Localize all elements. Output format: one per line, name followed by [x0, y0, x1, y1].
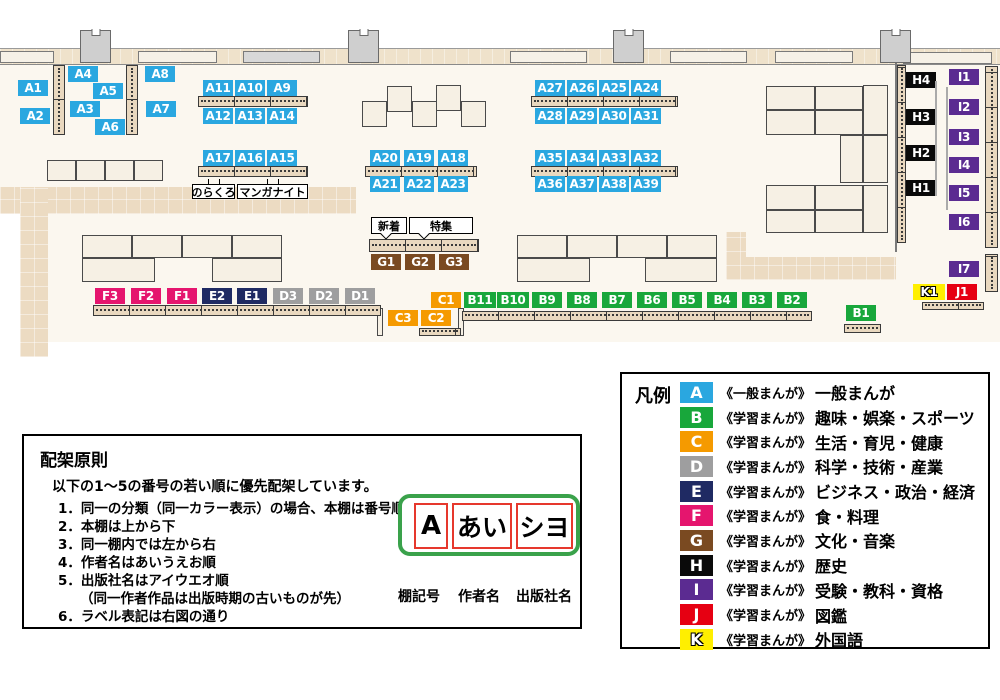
shelf-label-a20: A20 — [370, 150, 400, 166]
legend-title: 凡例 — [635, 382, 671, 408]
shelf-label-a37: A37 — [567, 176, 597, 192]
shelf-label-a34: A34 — [567, 150, 597, 166]
wall-pillar — [613, 30, 644, 63]
table-rect — [766, 185, 815, 210]
principle-item-2: 2．本棚は上から下 — [58, 518, 405, 536]
table-rect — [76, 160, 105, 181]
floor-cutout — [0, 214, 20, 342]
legend-row-i: I《学習まんが》受験・教科・資格 — [680, 578, 975, 603]
shelf-label-a13: A13 — [235, 108, 265, 124]
table-rect — [232, 235, 282, 258]
legend-row-a: A《一般まんが》一般まんが — [680, 380, 975, 405]
shelf-label-a11: A11 — [203, 80, 233, 96]
legend-badge-j: J — [680, 604, 713, 625]
walkway-right-horizontal — [726, 257, 896, 280]
shelf-label-c2: C2 — [421, 310, 451, 326]
shelf-label-h1: H1 — [906, 180, 936, 196]
shelf-strip — [922, 302, 984, 310]
shelf-label-k1: K1 — [913, 284, 945, 300]
legend-prefix: 《学習まんが》 — [720, 482, 811, 501]
legend-category-name: 外国語 — [815, 627, 863, 651]
legend-badge-h: H — [680, 555, 713, 576]
principle-item-1: 1．同一の分類（同一カラー表示）の場合、本棚は番号順 — [58, 500, 405, 518]
shelf-label-a9: A9 — [267, 80, 297, 96]
shelf-strip — [126, 65, 138, 135]
shelf-label-b2: B2 — [777, 292, 807, 308]
shelf-label-a4: A4 — [68, 66, 98, 82]
walkway-right-vertical — [726, 232, 746, 280]
legend-category-name: 図鑑 — [815, 603, 847, 627]
principle-item-5: 5．出版社名はアイウエオ順 — [58, 572, 405, 590]
shelf-label-i6: I6 — [949, 214, 979, 230]
shelf-label-f2: F2 — [131, 288, 161, 304]
shelf-label-b4: B4 — [707, 292, 737, 308]
shelf-label-a32: A32 — [631, 150, 661, 166]
shelf-label-a8: A8 — [145, 66, 175, 82]
caption-shelf-code: 棚記号 — [398, 586, 440, 606]
shelf-label-e1: E1 — [237, 288, 267, 304]
shelf-label-c3: C3 — [388, 310, 418, 326]
map-callout-1: マンガナイト — [237, 184, 308, 199]
legend-row-j: J《学習まんが》図鑑 — [680, 602, 975, 627]
table-rect — [815, 210, 863, 233]
shelf-label-a12: A12 — [203, 108, 233, 124]
shelf-label-b6: B6 — [637, 292, 667, 308]
shelf-label-a35: A35 — [535, 150, 565, 166]
table-rect — [863, 135, 888, 183]
legend-badge-k: K — [680, 629, 713, 650]
legend-prefix: 《学習まんが》 — [720, 408, 811, 427]
table-rect — [82, 235, 132, 258]
legend-row-k: K《学習まんが》外国語 — [680, 627, 975, 652]
shelf-label-g1: G1 — [371, 254, 401, 270]
shelf-label-a18: A18 — [438, 150, 468, 166]
shelf-strip — [897, 65, 906, 243]
shelf-label-a5: A5 — [93, 83, 123, 99]
pillar-notch — [359, 29, 368, 36]
legend-prefix: 《一般まんが》 — [720, 383, 811, 402]
shelf-label-a17: A17 — [203, 150, 233, 166]
legend-prefix: 《学習まんが》 — [720, 580, 811, 599]
legend-box: 凡例 A《一般まんが》一般まんがB《学習まんが》趣味・娯楽・スポーツC《学習まん… — [620, 372, 990, 649]
legend-category-name: 科学・技術・産業 — [815, 454, 943, 478]
principle-item-3: 3．同一棚内では左から右 — [58, 536, 405, 554]
caption-author: 作者名 — [458, 586, 500, 606]
legend-badge-c: C — [680, 431, 713, 452]
shelf-label-g3: G3 — [439, 254, 469, 270]
shelf-label-a7: A7 — [146, 101, 176, 117]
shelf-label-a33: A33 — [599, 150, 629, 166]
legend-rows: A《一般まんが》一般まんがB《学習まんが》趣味・娯楽・スポーツC《学習まんが》生… — [680, 380, 975, 652]
table-rect — [567, 235, 617, 258]
shelf-strip — [419, 328, 461, 336]
shelf-label-a15: A15 — [267, 150, 297, 166]
shelf-label-i5: I5 — [949, 185, 979, 201]
legend-category-name: 趣味・娯楽・スポーツ — [815, 405, 975, 429]
shelf-strip — [462, 311, 812, 321]
shelf-strip — [985, 254, 998, 292]
map-callout-2: 新着 — [371, 217, 407, 234]
wall-window — [0, 51, 54, 63]
table-rect — [82, 258, 155, 282]
legend-row-d: D《学習まんが》科学・技術・産業 — [680, 454, 975, 479]
legend-row-c: C《学習まんが》生活・育児・健康 — [680, 429, 975, 454]
shelf-strip — [369, 239, 479, 252]
shelf-label-a2: A2 — [20, 108, 50, 124]
shelf-label-a16: A16 — [235, 150, 265, 166]
shelf-label-d1: D1 — [345, 288, 375, 304]
shelf-label-a31: A31 — [631, 108, 661, 124]
table-rect — [47, 160, 76, 181]
legend-category-name: 生活・育児・健康 — [815, 430, 943, 454]
legend-badge-a: A — [680, 382, 713, 403]
legend-category-name: ビジネス・政治・経済 — [815, 479, 975, 503]
wall-window — [670, 51, 747, 63]
wall-window — [510, 51, 587, 63]
table-rect — [645, 258, 717, 282]
shelf-label-g2: G2 — [405, 254, 435, 270]
label-segment-publisher: シヨ — [516, 503, 573, 549]
shelf-label-a36: A36 — [535, 176, 565, 192]
table-rect — [387, 86, 412, 112]
legend-badge-e: E — [680, 481, 713, 502]
shelf-label-a6: A6 — [95, 119, 125, 135]
principle-item-4: 4．作者名はあいうえお順 — [58, 554, 405, 572]
table-rect — [132, 235, 182, 258]
wall-pillar — [80, 30, 111, 63]
legend-prefix: 《学習まんが》 — [720, 432, 811, 451]
shelf-label-a14: A14 — [267, 108, 297, 124]
table-rect — [766, 210, 815, 233]
shelf-label-i4: I4 — [949, 157, 979, 173]
principles-intro: 以下の1～5の番号の若い順に優先配架しています。 — [52, 476, 378, 496]
table-rect — [182, 235, 232, 258]
shelf-strip — [985, 66, 998, 248]
shelf-label-f1: F1 — [167, 288, 197, 304]
table-rect — [815, 185, 863, 210]
wall-window — [903, 52, 992, 64]
label-segment-shelf-code: A — [414, 503, 448, 549]
shelf-label-i7: I7 — [949, 261, 979, 277]
shelf-label-b1: B1 — [846, 305, 876, 321]
legend-prefix: 《学習まんが》 — [720, 556, 811, 575]
shelf-label-a38: A38 — [599, 176, 629, 192]
pillar-notch — [624, 29, 633, 36]
legend-category-name: 受験・教科・資格 — [815, 578, 943, 602]
legend-prefix: 《学習まんが》 — [720, 457, 811, 476]
shelf-label-a39: A39 — [631, 176, 661, 192]
library-floor-map: A1A4A8A5A3A7A2A6A11A10A9A12A13A14A17A16A… — [0, 0, 1000, 700]
legend-row-h: H《学習まんが》歴史 — [680, 553, 975, 578]
legend-prefix: 《学習まんが》 — [720, 630, 811, 649]
legend-badge-f: F — [680, 505, 713, 526]
legend-row-e: E《学習まんが》ビジネス・政治・経済 — [680, 479, 975, 504]
shelf-strip — [844, 324, 881, 333]
shelf-label-d2: D2 — [309, 288, 339, 304]
legend-row-b: B《学習まんが》趣味・娯楽・スポーツ — [680, 405, 975, 430]
shelf-label-a27: A27 — [535, 80, 565, 96]
table-rect — [815, 110, 863, 135]
shelf-label-a26: A26 — [567, 80, 597, 96]
wall-window — [243, 51, 320, 63]
wall-pillar — [348, 30, 379, 63]
table-rect — [815, 86, 863, 110]
shelf-label-e2: E2 — [202, 288, 232, 304]
shelf-label-f3: F3 — [95, 288, 125, 304]
shelf-label-a29: A29 — [567, 108, 597, 124]
shelf-label-b11: B11 — [464, 292, 496, 308]
wall-pillar — [880, 30, 911, 63]
legend-category-name: 文化・音楽 — [815, 528, 895, 552]
principle-item-6: 6．ラベル表記は右図の通り — [58, 608, 405, 626]
table-rect — [840, 135, 863, 183]
table-rect — [436, 85, 461, 111]
shelf-label-i2: I2 — [949, 99, 979, 115]
legend-row-g: G《学習まんが》文化・音楽 — [680, 528, 975, 553]
table-rect — [863, 185, 888, 233]
table-rect — [362, 101, 387, 127]
shelf-label-a1: A1 — [18, 80, 48, 96]
wall-window — [138, 51, 217, 63]
principles-title: 配架原則 — [40, 446, 108, 471]
map-callout-0: のらくろ — [192, 184, 235, 199]
shelf-label-a28: A28 — [535, 108, 565, 124]
shelf-label-a19: A19 — [404, 150, 434, 166]
walkway-left-vertical — [20, 187, 48, 357]
principle-note: （同一作者作品は出版時期の古いものが先） — [58, 590, 405, 608]
label-segment-author: あい — [452, 503, 512, 549]
shelf-label-h4: H4 — [906, 72, 936, 88]
legend-badge-i: I — [680, 579, 713, 600]
table-rect — [212, 258, 282, 282]
shelf-label-c1: C1 — [431, 292, 461, 308]
shelf-strip — [93, 305, 381, 316]
shelf-label-h3: H3 — [906, 109, 936, 125]
shelf-strip — [531, 96, 678, 107]
table-rect — [461, 101, 486, 127]
shelf-label-b7: B7 — [602, 292, 632, 308]
shelf-label-j1: J1 — [947, 284, 977, 300]
caption-publisher: 出版社名 — [516, 586, 572, 606]
shelf-strip — [53, 65, 65, 135]
shelf-label-b8: B8 — [567, 292, 597, 308]
table-rect — [105, 160, 134, 181]
table-rect — [617, 235, 667, 258]
shelf-label-a23: A23 — [438, 176, 468, 192]
table-rect — [863, 85, 888, 135]
shelf-label-d3: D3 — [273, 288, 303, 304]
table-rect — [517, 235, 567, 258]
shelf-label-a10: A10 — [235, 80, 265, 96]
legend-category-name: 一般まんが — [815, 380, 895, 404]
pillar-notch — [891, 29, 900, 36]
map-callout-3: 特集 — [409, 217, 473, 234]
shelf-strip — [198, 166, 308, 177]
table-rect — [412, 101, 437, 127]
shelf-label-a25: A25 — [599, 80, 629, 96]
shelf-label-b9: B9 — [532, 292, 562, 308]
shelf-strip — [198, 96, 308, 107]
shelf-label-h2: H2 — [906, 145, 936, 161]
legend-row-f: F《学習まんが》食・料理 — [680, 503, 975, 528]
legend-badge-d: D — [680, 456, 713, 477]
legend-category-name: 食・料理 — [815, 504, 879, 528]
legend-prefix: 《学習まんが》 — [720, 506, 811, 525]
table-rect — [517, 258, 590, 282]
table-rect — [134, 160, 163, 181]
shelf-label-a30: A30 — [599, 108, 629, 124]
shelf-label-i3: I3 — [949, 129, 979, 145]
legend-prefix: 《学習まんが》 — [720, 531, 811, 550]
shelf-label-b5: B5 — [672, 292, 702, 308]
wall-window — [775, 51, 853, 63]
shelf-label-b3: B3 — [742, 292, 772, 308]
shelf-label-a22: A22 — [404, 176, 434, 192]
legend-category-name: 歴史 — [815, 553, 847, 577]
table-rect — [766, 86, 815, 110]
shelf-label-a3: A3 — [70, 101, 100, 117]
principles-list: 1．同一の分類（同一カラー表示）の場合、本棚は番号順2．本棚は上から下3．同一棚… — [58, 500, 405, 626]
legend-badge-g: G — [680, 530, 713, 551]
table-rect — [766, 110, 815, 135]
table-rect — [667, 235, 717, 258]
shelf-label-a21: A21 — [370, 176, 400, 192]
legend-prefix: 《学習まんが》 — [720, 605, 811, 624]
shelf-label-i1: I1 — [949, 69, 979, 85]
pillar-notch — [91, 29, 100, 36]
shelf-label-b10: B10 — [497, 292, 529, 308]
legend-badge-b: B — [680, 407, 713, 428]
shelf-label-a24: A24 — [631, 80, 661, 96]
